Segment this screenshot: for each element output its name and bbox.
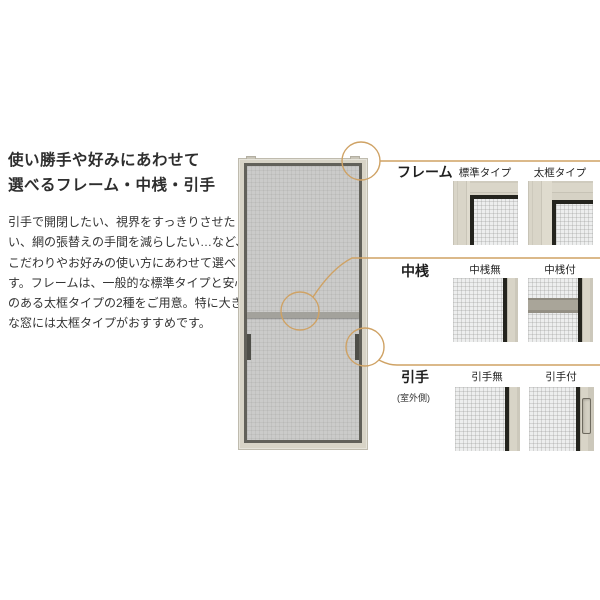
midrail-bar xyxy=(528,298,578,313)
body-line: 引手で開閉したい、視界をすっきりさせた xyxy=(8,212,258,232)
handle-leader-line xyxy=(379,360,600,365)
body-line: な窓には太框タイプがおすすめです。 xyxy=(8,313,258,333)
screen-door-image xyxy=(238,158,368,450)
door-middle-rail xyxy=(247,312,359,318)
row-label-handle: 引手 xyxy=(401,367,429,387)
door-pull-handle-right xyxy=(355,334,359,360)
body-line: こだわりやお好みの使い方にあわせて選べま xyxy=(8,253,258,273)
sample-image-frame-standard xyxy=(453,181,518,245)
body-line: す。フレームは、一般的な標準タイプと安心感 xyxy=(8,273,258,293)
recessed-pull-handle xyxy=(582,398,591,434)
frame-side-rail xyxy=(507,278,518,342)
sample-image-no-handle xyxy=(455,387,520,451)
sample-image-with-midrail xyxy=(528,278,593,342)
sample-image-with-handle xyxy=(529,387,594,451)
section-heading: 使い勝手や好みにあわせて 選べるフレーム・中桟・引手 xyxy=(8,148,216,198)
option-label-standard-type: 標準タイプ xyxy=(452,165,518,180)
option-label-with-handle: 引手付 xyxy=(528,369,594,384)
door-mesh-panel xyxy=(244,163,362,443)
frame-side-rail xyxy=(453,181,470,245)
option-label-no-midrail: 中桟無 xyxy=(452,262,518,277)
option-label-no-handle: 引手無 xyxy=(454,369,520,384)
option-label-thick-frame-type: 太框タイプ xyxy=(527,165,593,180)
body-line: のある太框タイプの2種をご用意。特に大き xyxy=(8,293,258,313)
option-label-with-midrail: 中桟付 xyxy=(527,262,593,277)
sample-image-frame-thick xyxy=(528,181,593,245)
door-pull-handle-left xyxy=(247,334,251,360)
frame-inner-edge xyxy=(470,195,518,245)
body-line: い、網の張替えの手間を減らしたい…など、 xyxy=(8,232,258,252)
sample-image-no-midrail xyxy=(453,278,518,342)
row-label-midrail: 中桟 xyxy=(401,261,429,281)
frame-side-rail xyxy=(582,278,593,342)
frame-side-rail xyxy=(528,181,552,245)
door-top-tab-right xyxy=(350,156,360,159)
frame-inner-edge xyxy=(552,200,593,245)
heading-line-1: 使い勝手や好みにあわせて xyxy=(8,148,216,173)
row-label-frame: フレーム xyxy=(397,162,453,182)
frame-side-rail xyxy=(509,387,520,451)
door-top-tab-left xyxy=(246,156,256,159)
heading-line-2: 選べるフレーム・中桟・引手 xyxy=(8,173,216,198)
row-note-outdoor-side: (室外側) xyxy=(397,391,430,404)
section-body: 引手で開閉したい、視界をすっきりさせた い、網の張替えの手間を減らしたい…など、… xyxy=(8,212,258,334)
